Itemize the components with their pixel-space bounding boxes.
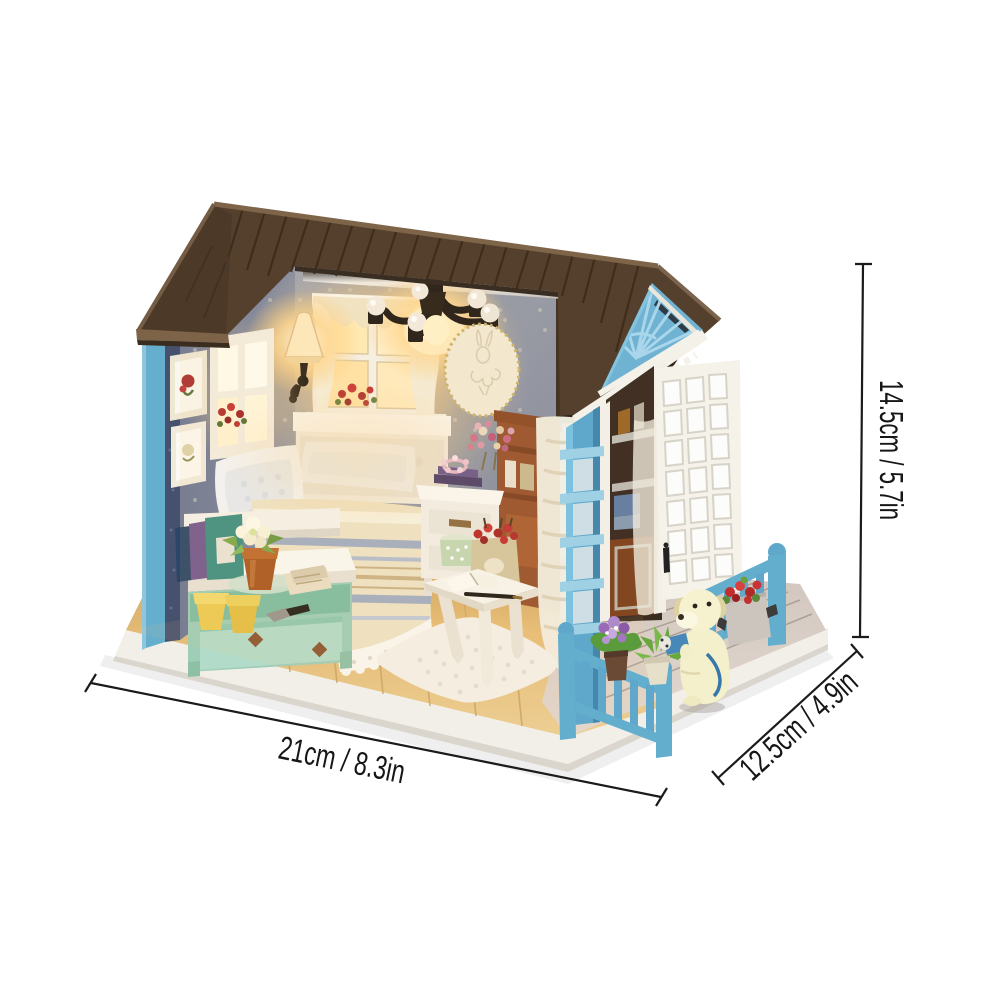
svg-text:14.5cm / 5.7in: 14.5cm / 5.7in xyxy=(873,380,910,520)
